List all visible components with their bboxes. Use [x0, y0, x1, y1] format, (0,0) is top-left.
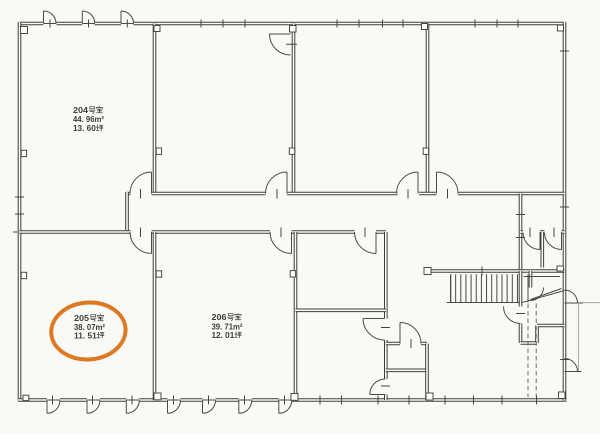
- svg-text:44. 96m²: 44. 96m²: [73, 115, 104, 124]
- svg-text:11. 51: 11. 51: [74, 331, 97, 340]
- svg-text:12. 01: 12. 01: [212, 331, 235, 340]
- svg-text:204: 204: [73, 106, 89, 115]
- svg-text:206: 206: [212, 313, 228, 322]
- svg-text:205: 205: [74, 314, 90, 323]
- svg-text:13. 60: 13. 60: [73, 124, 96, 133]
- svg-text:39. 71m²: 39. 71m²: [212, 322, 243, 331]
